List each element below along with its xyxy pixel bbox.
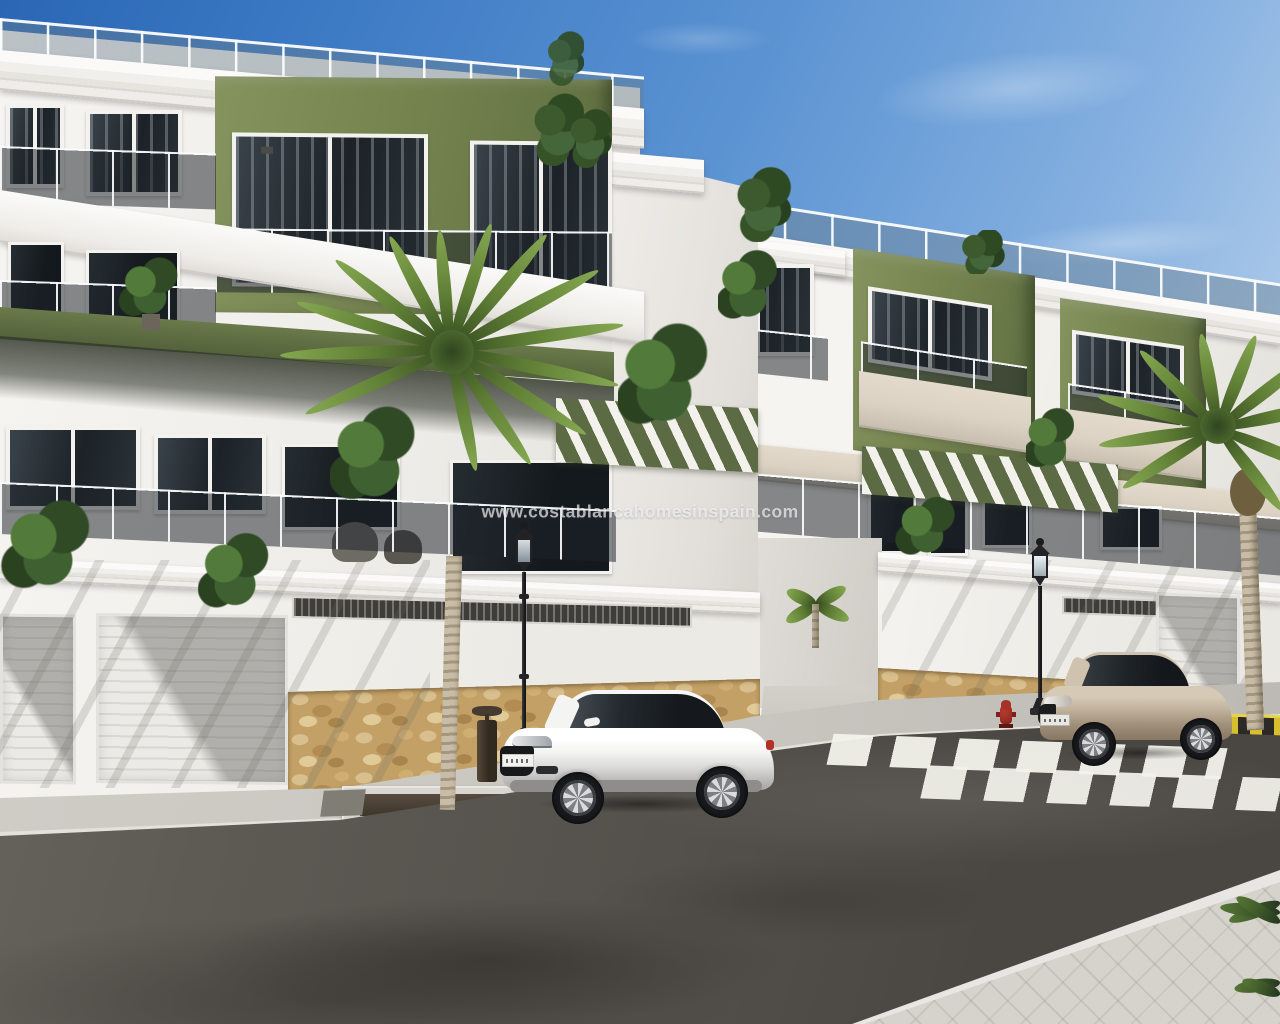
license-plate — [1040, 714, 1070, 726]
plant-pot — [142, 314, 160, 330]
balcony-plant — [894, 496, 960, 558]
rooftop-tree — [570, 108, 612, 168]
palm-crown-core — [1200, 408, 1236, 444]
wheel — [1180, 718, 1222, 760]
wall-light — [261, 147, 273, 154]
watermark-text: www.costablancahomesinspain.com — [481, 502, 798, 523]
curbstone — [320, 789, 366, 816]
corner-palm-fronds — [1222, 856, 1280, 1024]
balcony-plant — [618, 318, 710, 434]
taillight — [766, 740, 774, 750]
car-white-coupe — [500, 688, 782, 820]
rooftop-tree — [958, 230, 1008, 274]
litter-bin — [472, 706, 502, 786]
balcony-plant — [330, 402, 418, 508]
car-beige-coupe — [1038, 652, 1238, 764]
rooftop-tree — [548, 30, 584, 86]
balcony-plant — [118, 256, 182, 320]
palm-crown-core — [430, 330, 474, 374]
wheel — [1072, 722, 1116, 766]
rooftop-tree — [736, 166, 792, 242]
license-plate — [502, 754, 534, 767]
cloud — [600, 16, 800, 62]
balcony-plant — [718, 246, 778, 326]
balcony-plant — [0, 498, 96, 594]
palm-tree — [1100, 320, 1280, 560]
air-intake — [536, 766, 558, 774]
right-green-facade-box-1 — [853, 248, 1035, 478]
scene-apartment-render: www.costablancahomesinspain.com — [0, 0, 1280, 1024]
balcony-plant — [1026, 404, 1074, 474]
wheel — [696, 766, 748, 818]
courtyard-palm — [782, 570, 852, 650]
wheel — [552, 772, 604, 824]
balcony-plant — [198, 530, 272, 614]
fire-hydrant — [996, 698, 1016, 730]
